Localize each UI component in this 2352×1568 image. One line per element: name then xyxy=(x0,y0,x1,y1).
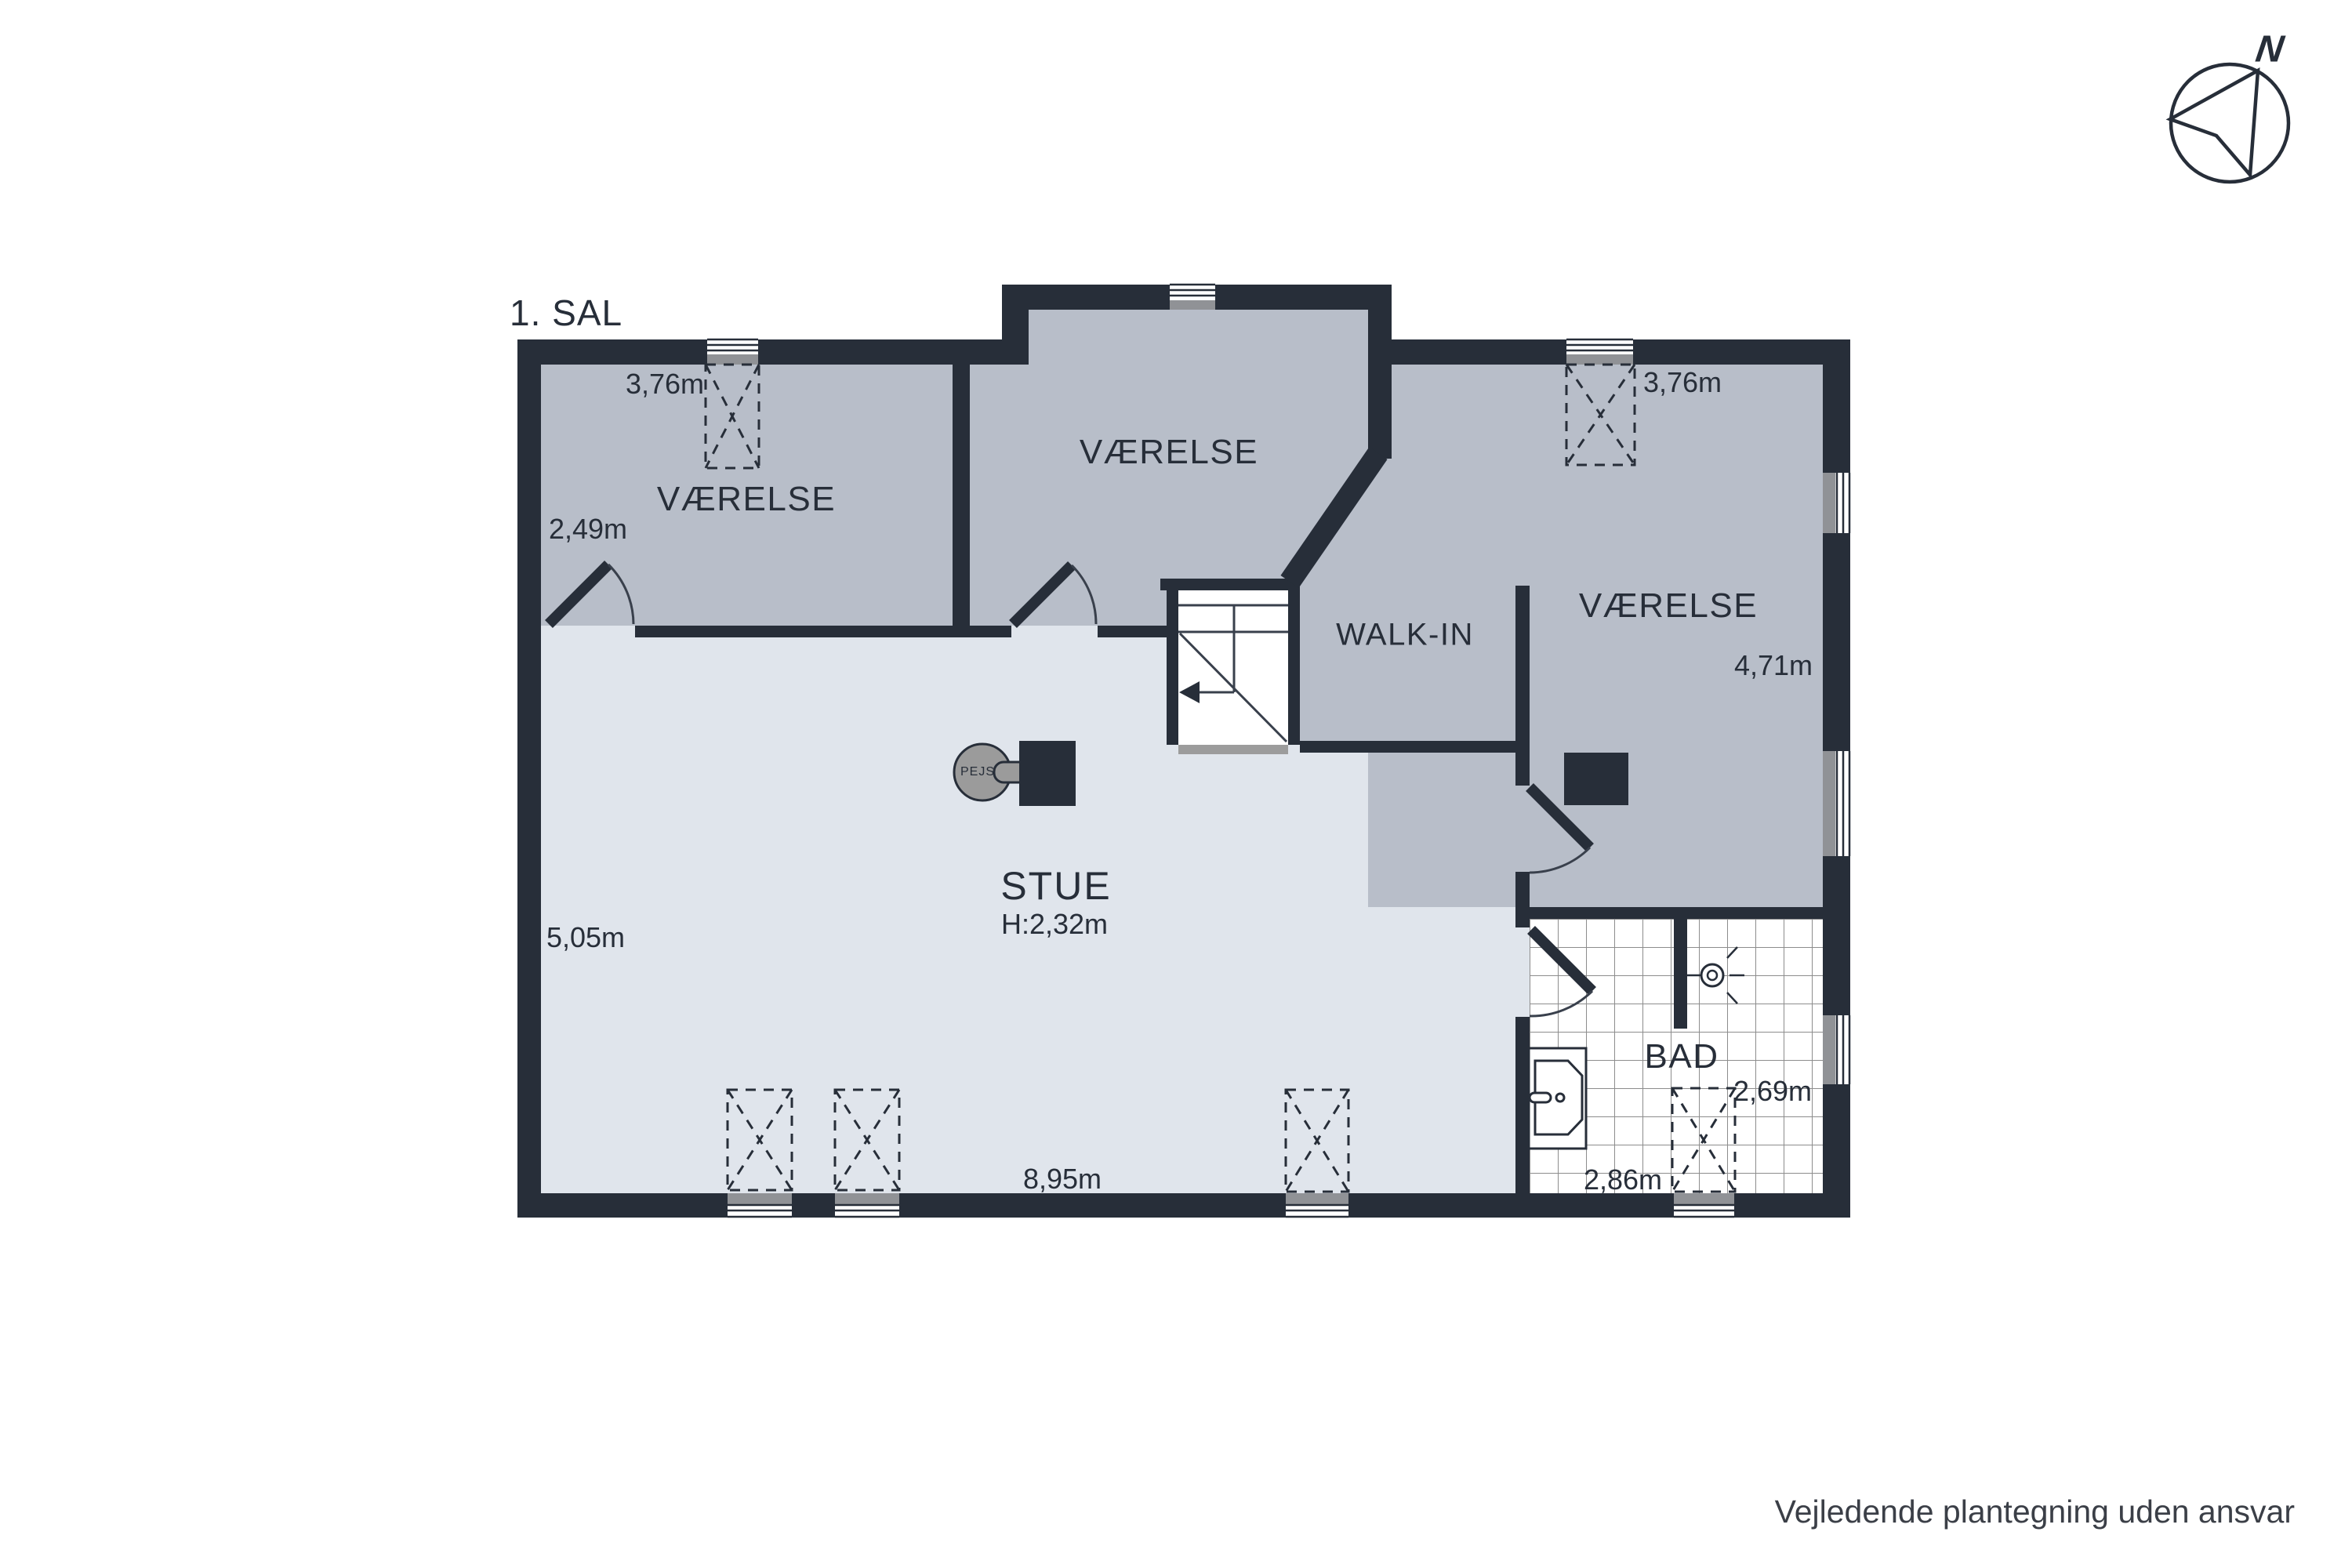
wall-bad-top xyxy=(1530,907,1823,919)
disclaimer-text: Vejledende plantegning uden ansvar xyxy=(1775,1494,2295,1530)
floor-title: 1. SAL xyxy=(510,292,622,334)
dim-bad-width: 2,86m xyxy=(1584,1163,1662,1196)
dim-top-left-depth: 2,49m xyxy=(549,513,627,546)
room-label-stue: STUE xyxy=(1000,863,1111,909)
stove-block xyxy=(1564,753,1628,805)
wall-stairs-top xyxy=(1160,579,1300,590)
room-label-vaerelse-right: VÆRELSE xyxy=(1579,586,1758,626)
window-right-middle xyxy=(1823,751,1851,856)
window-right-upper xyxy=(1823,473,1851,533)
wall-rooms-stue-a xyxy=(635,626,1011,637)
wall-shower-stub xyxy=(1674,919,1687,1029)
walk-in-floor xyxy=(1300,579,1515,753)
dim-top-right-width: 3,76m xyxy=(1643,366,1722,399)
wall-rooms-stue-b xyxy=(1098,626,1178,637)
window-top-right xyxy=(1566,338,1633,365)
compass-rose xyxy=(2170,64,2288,182)
stue-ceiling-height: H:2,32m xyxy=(1001,908,1108,941)
window-bad-bottom xyxy=(1674,1193,1734,1219)
wall-stairs-right xyxy=(1288,579,1300,745)
window-bottom-2 xyxy=(835,1193,899,1219)
wall-between-vaerelse xyxy=(953,365,970,626)
room-label-walk-in: WALK-IN xyxy=(1336,618,1474,653)
window-bay xyxy=(1170,283,1215,310)
window-bottom-1 xyxy=(728,1193,792,1219)
dim-right-depth: 4,71m xyxy=(1734,649,1813,682)
dim-top-left-width: 3,76m xyxy=(626,368,704,401)
chimney-block xyxy=(1019,741,1076,806)
window-bad-right xyxy=(1823,1015,1851,1084)
window-bottom-3 xyxy=(1286,1193,1348,1219)
room-label-bad: BAD xyxy=(1645,1037,1719,1076)
floorplan-drawing xyxy=(0,0,2352,1568)
window-top-left xyxy=(707,338,758,365)
dim-stue-depth: 5,05m xyxy=(546,921,625,954)
dim-stue-width: 8,95m xyxy=(1023,1163,1102,1196)
floorplan-page: 1. SAL VÆRELSE VÆRELSE VÆRELSE WALK-IN S… xyxy=(0,0,2352,1568)
wall-walkin-bottom xyxy=(1300,741,1515,753)
vaerelse-top-middle-bay-floor xyxy=(1029,310,1368,365)
dim-bad-depth: 2,69m xyxy=(1733,1075,1812,1108)
compass-north-label: N xyxy=(2253,28,2286,71)
room-label-vaerelse-top-left: VÆRELSE xyxy=(657,480,836,519)
wall-walkin-right xyxy=(1515,586,1530,786)
room-label-vaerelse-top-middle: VÆRELSE xyxy=(1080,433,1258,472)
stair-landing-strip xyxy=(1178,745,1288,754)
washbasin-icon xyxy=(1529,1048,1586,1149)
wall-stairs-left xyxy=(1167,579,1178,745)
fireplace-label: PEJS xyxy=(960,765,995,779)
